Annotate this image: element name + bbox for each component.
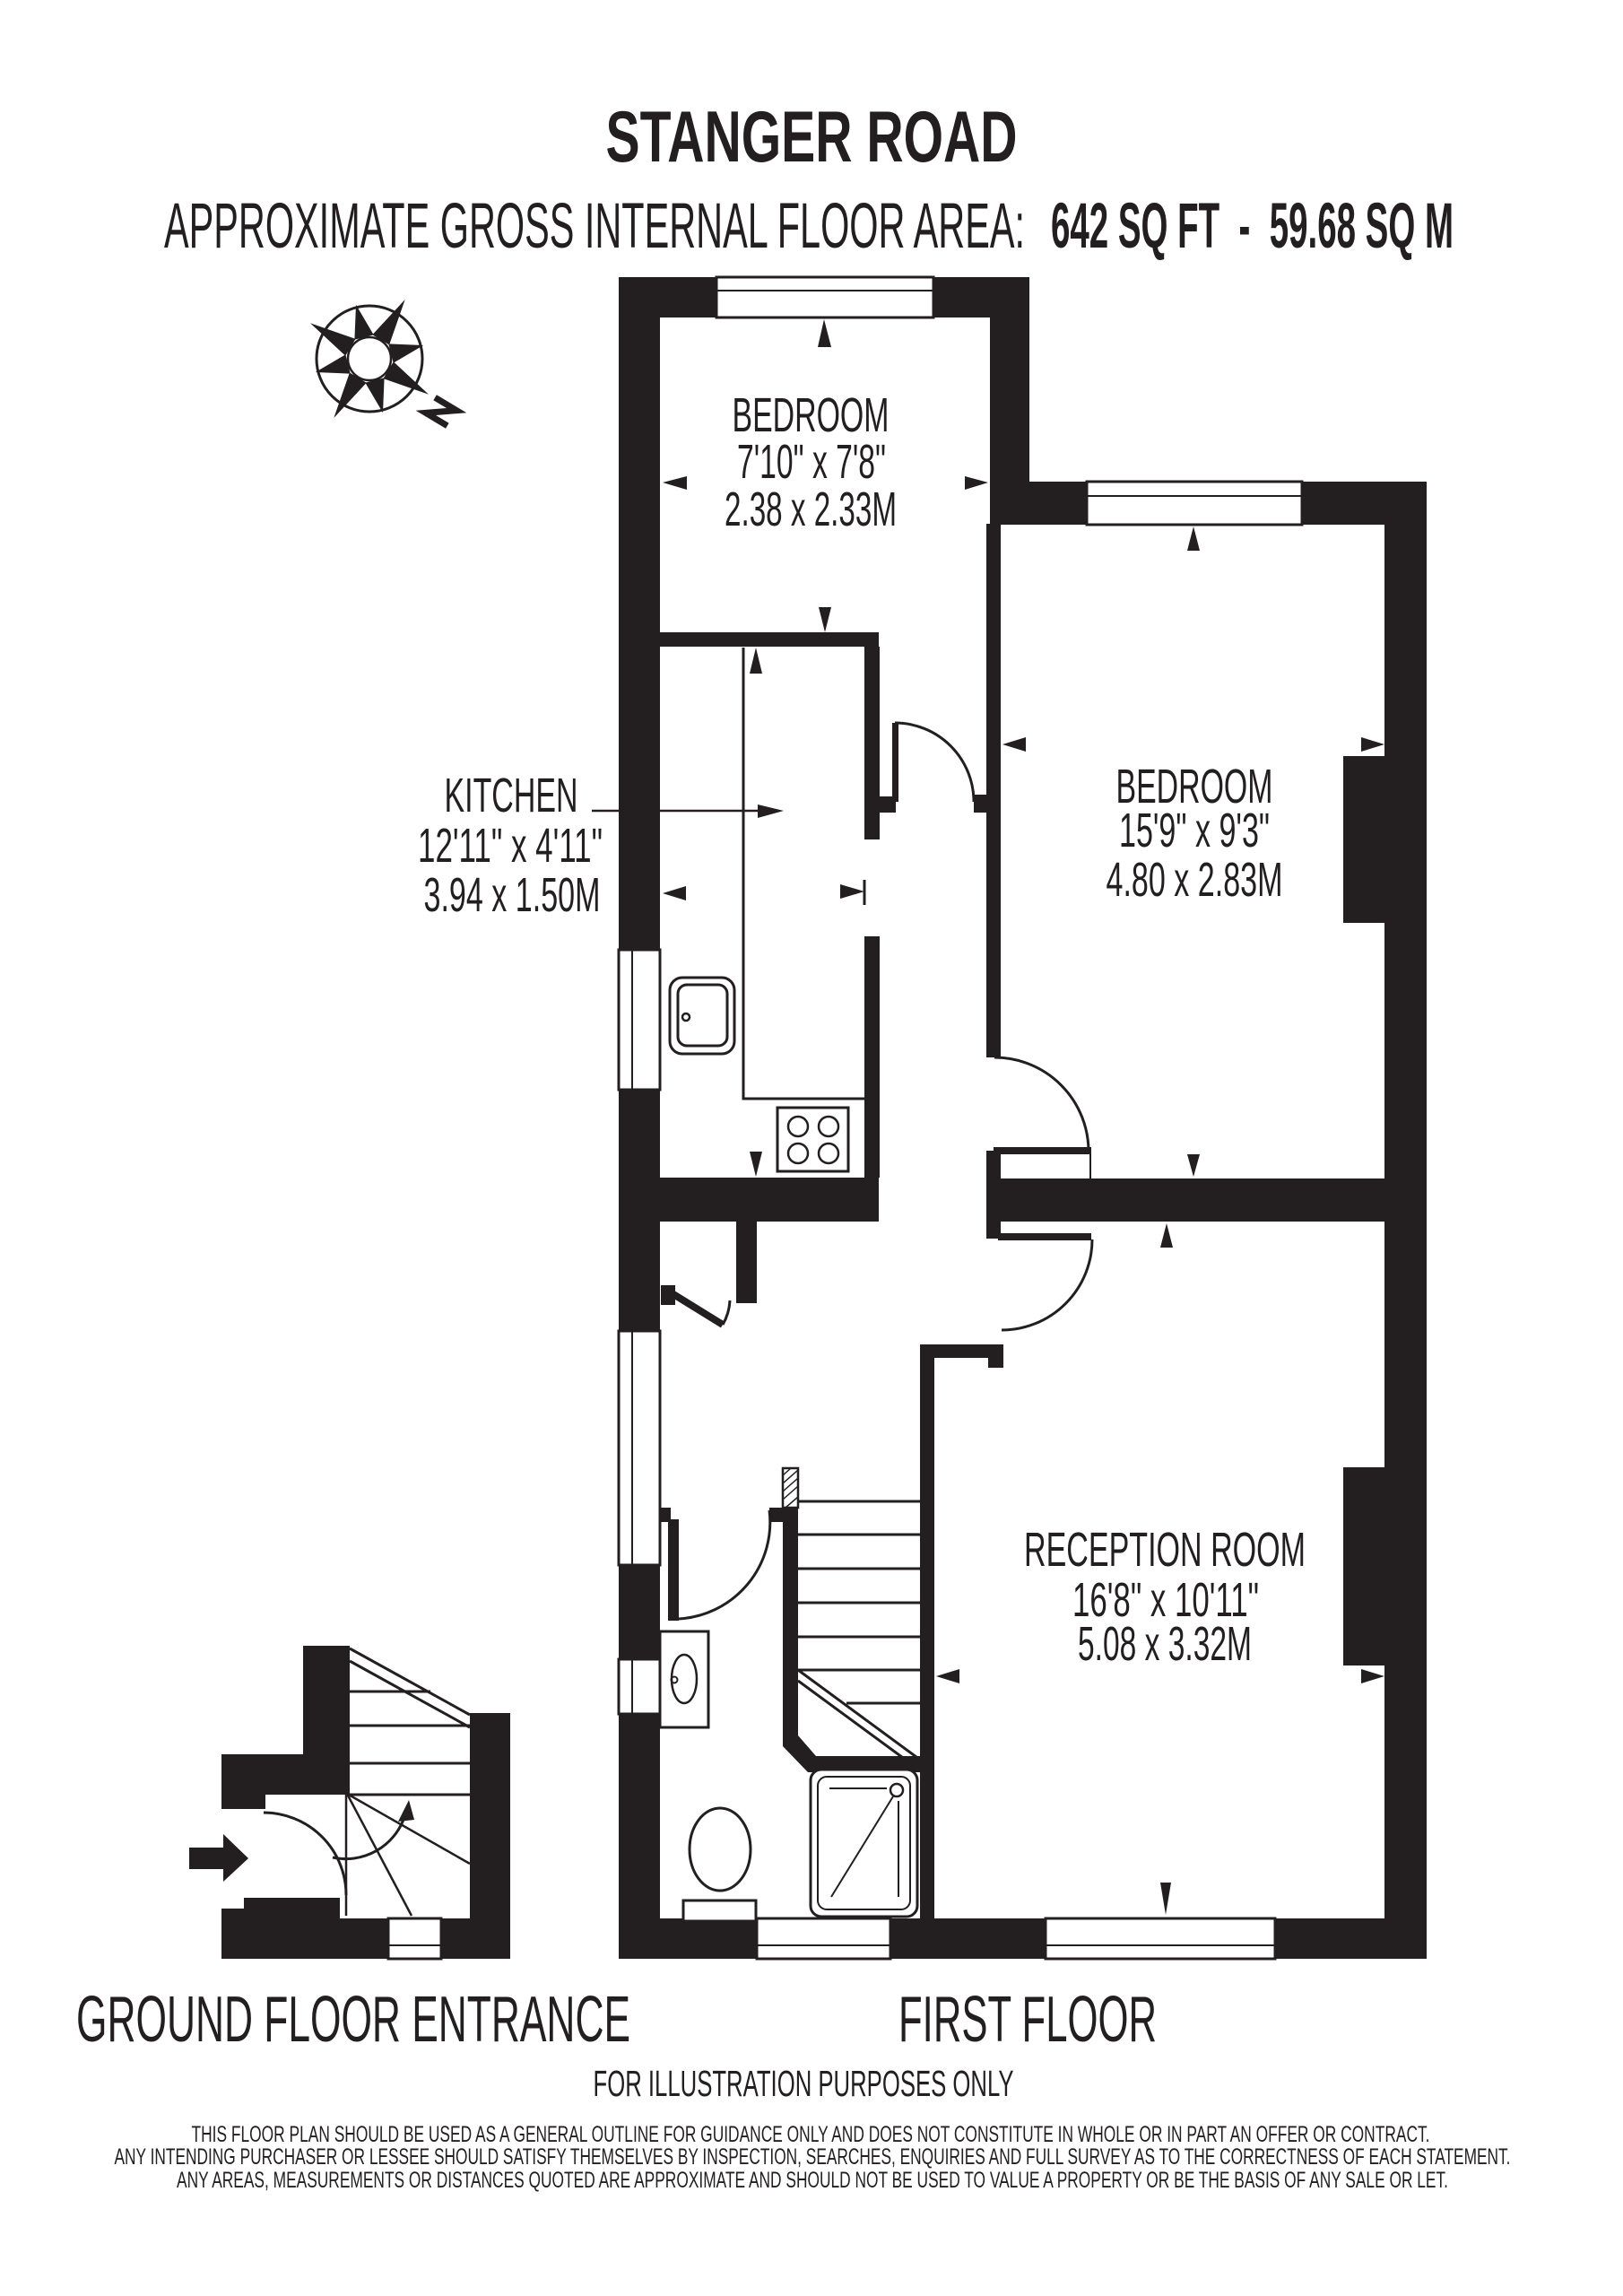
svg-text:2.38 x 2.33M: 2.38 x 2.33M: [725, 483, 897, 536]
svg-text:STANGER ROAD: STANGER ROAD: [606, 97, 1018, 178]
svg-text:642 SQ FT - 59.68 SQ M: 642 SQ FT - 59.68 SQ M: [1051, 191, 1454, 262]
svg-text:THIS FLOOR PLAN SHOULD BE USED: THIS FLOOR PLAN SHOULD BE USED AS A GENE…: [192, 2122, 1430, 2147]
svg-text:FOR ILLUSTRATION PURPOSES ONLY: FOR ILLUSTRATION PURPOSES ONLY: [594, 2063, 1014, 2104]
svg-text:5.08 x 3.32M: 5.08 x 3.32M: [1078, 1617, 1252, 1671]
svg-text:APPROXIMATE GROSS INTERNAL FLO: APPROXIMATE GROSS INTERNAL FLOOR AREA:: [164, 191, 1025, 262]
svg-text:7'10" x 7'8": 7'10" x 7'8": [737, 435, 886, 489]
svg-text:15'9" x 9'3": 15'9" x 9'3": [1119, 804, 1270, 857]
svg-text:ANY AREAS, MEASUREMENTS OR DIS: ANY AREAS, MEASUREMENTS OR DISTANCES QUO…: [177, 2168, 1448, 2193]
svg-text:BEDROOM: BEDROOM: [733, 388, 890, 442]
svg-text:4.80 x 2.83M: 4.80 x 2.83M: [1107, 853, 1283, 907]
svg-text:ANY INTENDING PURCHASER OR LES: ANY INTENDING PURCHASER OR LESSEE SHOULD…: [115, 2144, 1511, 2170]
svg-text:12'11" x 4'11": 12'11" x 4'11": [418, 819, 603, 873]
svg-text:RECEPTION ROOM: RECEPTION ROOM: [1024, 1523, 1306, 1577]
svg-text:FIRST FLOOR: FIRST FLOOR: [898, 1984, 1157, 2056]
svg-text:GROUND FLOOR ENTRANCE: GROUND FLOOR ENTRANCE: [76, 1984, 630, 2056]
svg-text:3.94 x 1.50M: 3.94 x 1.50M: [424, 868, 601, 922]
svg-text:KITCHEN: KITCHEN: [445, 769, 578, 822]
